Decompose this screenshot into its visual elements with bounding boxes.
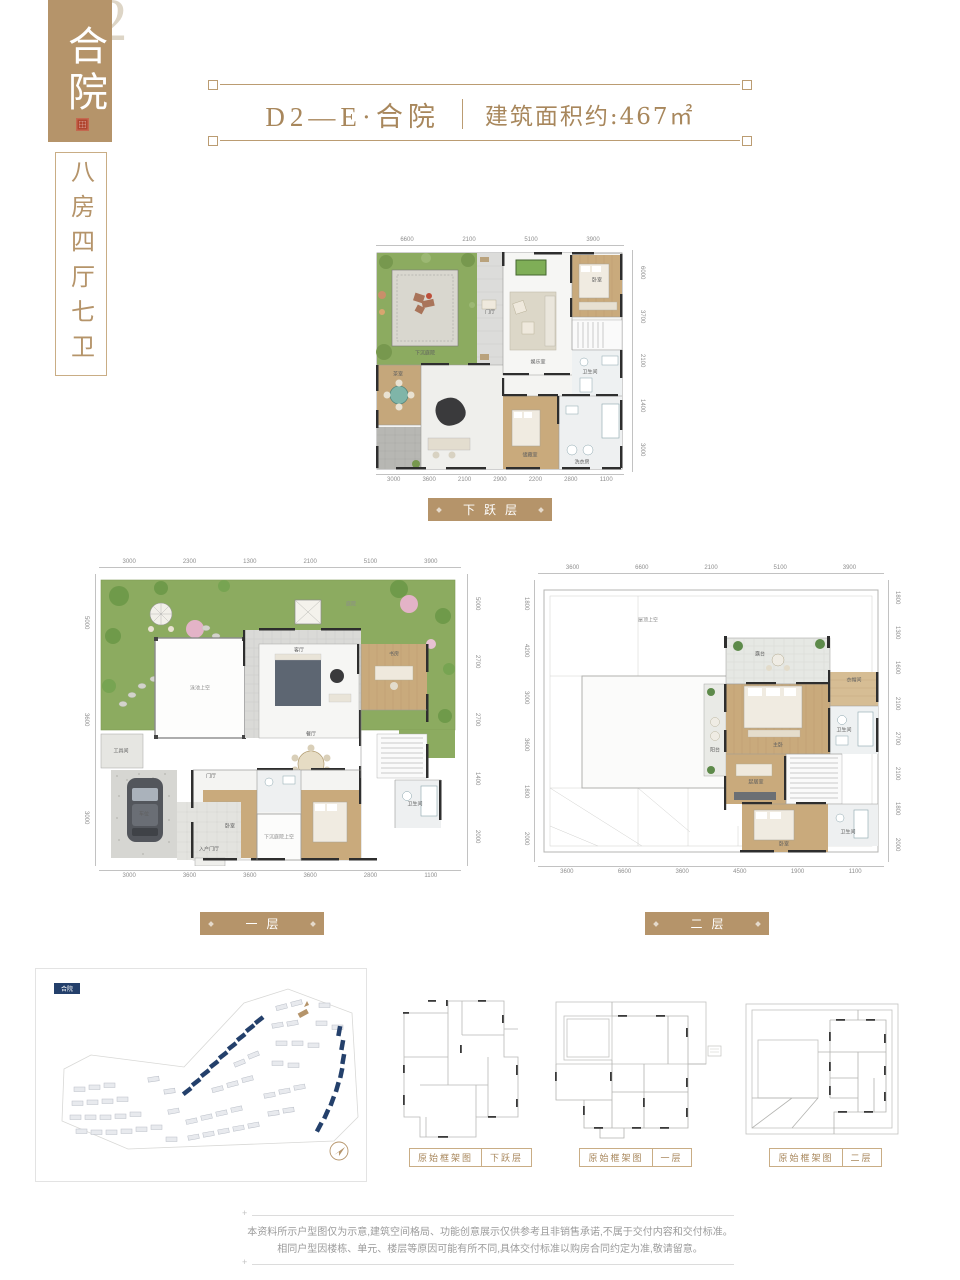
room-label: 主卧 [773,742,783,749]
framework-caption-title: 原始框架图 [769,1148,841,1167]
spec-box: 八房四厅七卫 [55,152,107,376]
framework-caption-first: 原始框架图一层 [548,1148,723,1167]
framework-caption-title: 原始框架图 [409,1148,481,1167]
room-label: 娱乐室 [530,359,545,366]
seal-stamp-icon [76,118,89,131]
disclaimer-rule-bottom [252,1264,734,1265]
room-label: 屋顶上空 [638,617,658,624]
floor-banner-lower: 下跃层 [428,498,552,521]
dims-left: 500036003000 [77,574,96,866]
title-content: D2—E·合院 建筑面积约:467㎡ [208,92,752,136]
room-label: 卫生间 [840,829,855,836]
room-label: 卫生间 [407,801,422,808]
dims-bottom: 360066003600450019001100 [538,866,884,876]
title-divider [462,99,463,129]
room-label: 门厅 [206,773,216,780]
disclaimer-line-1: 本资料所示户型图仅为示意,建筑空间格局、功能创意展示仅供参考且非销售承诺,不属于… [230,1224,750,1241]
room-label: 入户门厅 [199,846,219,853]
dims-top: 36006600210051003900 [538,564,884,574]
floorplan-second: 36006600210051003900 1800420030003600180… [512,556,912,888]
room-label: 庭院 [346,601,356,608]
floorplan-second-drawing: 屋顶上空 露台 主卧 衣帽间 卫生间 起居室 卧室 卫生间 阳台 [538,580,884,862]
framework-caption-lower: 原始框架图下跃层 [398,1148,543,1167]
room-label: 卧室 [779,841,789,848]
room-label: 餐厅 [306,731,316,738]
floorplan-lower: 6600210051003900 60003700210014003000 30… [356,230,656,486]
framework-lower-drawing [398,995,543,1143]
framework-caption-title: 原始框架图 [579,1148,651,1167]
room-label: 泳池上空 [190,685,210,692]
area-text: 建筑面积约:467㎡ [485,97,695,131]
room-label: 下沉庭院上空 [264,834,294,841]
room-label: 卫生间 [582,369,597,376]
room-label: 阳台 [710,747,720,754]
room-label: 卫生间 [836,727,851,734]
title-frame: D2—E·合院 建筑面积约:467㎡ [208,82,752,144]
floorplan-first-drawing: 庭院 泳池上空 客厅 餐厅 书房 门厅 车位 入户门厅 卧室 卫生间 下沉庭院上… [99,574,461,866]
dims-top: 300023001300210051003900 [99,558,461,568]
framework-caption-floor: 一层 [652,1148,692,1167]
room-label: 起居室 [748,779,763,786]
framework-caption-floor: 下跃层 [481,1148,532,1167]
spec-vertical-text: 八房四厅七卫 [64,159,99,369]
dims-bottom: 300036003600360028001100 [99,870,461,880]
product-name-vertical: 合院 [48,6,112,136]
dims-bottom: 3000360021002900220028001100 [376,474,624,484]
compass-icon [330,1142,348,1160]
disclaimer-rule-top [252,1215,734,1216]
legend-label: 合院 [61,985,73,993]
framework-second-drawing [738,992,913,1142]
dims-right: 18001300160021002700210018002000 [888,580,905,862]
flyer-page: D2 合院 八房四厅七卫 D2—E·合院 建筑面积约:467㎡ 66002100… [0,0,960,1280]
dims-top: 6600210051003900 [376,236,624,246]
room-label: 工具间 [113,748,128,755]
dims-right: 60003700210014003000 [632,250,651,472]
room-label: 下沉庭院 [415,350,435,357]
floorplan-lower-drawing: 下沉庭院 门厅 娱乐室 卧室 茶室 卫生间 储藏室 洗衣房 [376,250,624,472]
room-label: 门厅 [485,309,495,316]
site-map: 合院 [35,968,367,1182]
floorplan-first: 300023001300210051003900 500036003000 50… [75,552,487,888]
room-label: 茶室 [393,371,403,378]
framework-first-drawing [548,988,723,1144]
room-label: 客厅 [294,647,304,654]
dims-right: 50002700270014002000 [467,574,486,866]
room-label: 露台 [755,651,765,658]
room-label: 卧室 [225,823,235,830]
room-label: 书房 [389,651,399,658]
frame-line-top [220,84,740,85]
room-label: 衣帽间 [846,677,861,684]
room-label: 洗衣房 [574,459,589,466]
room-label: 车位 [139,811,149,818]
floor-banner-second: 二层 [645,912,769,935]
room-label: 卧室 [592,277,602,284]
frame-line-bottom [220,140,740,141]
room-label: 储藏室 [522,452,537,459]
framework-caption-second: 原始框架图二层 [738,1148,913,1167]
floor-banner-first: 一层 [200,912,324,935]
unit-title: D2—E·合院 [265,95,439,134]
framework-caption-floor: 二层 [842,1148,882,1167]
dims-left: 180042003000360018002000 [518,580,535,862]
disclaimer-line-2: 相同户型因楼栋、单元、楼层等原因可能有所不同,具体交付标准以购房合同约定为准,敬… [230,1241,750,1258]
